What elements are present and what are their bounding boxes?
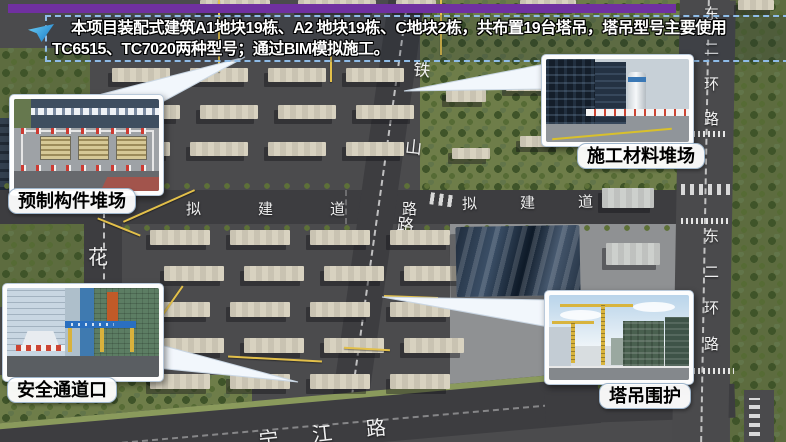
safety-gate-panel: [2, 283, 164, 382]
building-block: [310, 374, 370, 389]
crane-fence-photo: [549, 295, 689, 380]
building-block: [446, 90, 486, 102]
crane-fence-label: 塔吊围护: [599, 383, 691, 409]
building-block: [390, 374, 450, 389]
purple-accent-bar: [8, 4, 676, 13]
tower-crane-jib: [384, 295, 438, 299]
photo-tree: [14, 99, 31, 128]
tower-crane-jib: [228, 356, 322, 363]
planned-road-west-label: 拟建道路: [186, 198, 474, 219]
building-block: [112, 68, 170, 82]
photo-building-band: [29, 108, 160, 114]
building-block: [230, 230, 290, 245]
building-block: [738, 0, 774, 10]
building-block: [164, 266, 224, 281]
banner-line1: 本项目装配式建筑A1地块19栋、A2 地块19栋、C地块2栋，共布置19台塔吊，…: [71, 18, 726, 39]
building-block: [606, 243, 660, 265]
safety-gate-label: 安全通道口: [7, 377, 117, 403]
building-block: [346, 68, 404, 82]
building-block: [404, 338, 464, 353]
planned-road-east-label: 拟建道路: [462, 189, 694, 214]
photo-gate-post: [68, 328, 72, 352]
photo-crane-jib: [560, 304, 633, 307]
photo-gate-post: [130, 328, 134, 352]
building-block: [602, 188, 654, 208]
building-block: [390, 302, 450, 317]
building-block: [268, 68, 326, 82]
photo-material-fence: [586, 109, 689, 116]
photo-gate-post: [100, 328, 104, 352]
photo-green-building: [623, 321, 664, 367]
material-yard-label: 施工材料堆场: [577, 143, 705, 169]
building-block: [278, 105, 336, 119]
building-block: [244, 338, 304, 353]
hua-road-label: 花: [88, 241, 108, 270]
building-block: [310, 230, 370, 245]
crosswalk: [749, 398, 760, 436]
building-block: [390, 230, 450, 245]
building-block: [268, 142, 326, 156]
prefab-yard-panel: [9, 94, 164, 196]
large-industrial-building: [455, 225, 580, 297]
prefab-yard-label: 预制构件堆场: [8, 188, 136, 214]
photo-fence-posts: [21, 128, 150, 134]
slide: 铁山路 拟建道路 拟建道路 东二环路 东二环路 花 宁江路 本项目装配式建筑A1…: [0, 0, 786, 442]
building-block: [324, 266, 384, 281]
photo-white-tent: [22, 331, 58, 345]
material-yard-photo: [546, 59, 689, 142]
photo-green-building: [665, 317, 689, 366]
building-block: [150, 230, 210, 245]
photo-crane-mast: [571, 321, 575, 364]
building-block: [200, 105, 258, 119]
material-yard-panel: [541, 54, 694, 147]
building-block: [164, 338, 224, 353]
building-block: [356, 105, 414, 119]
building-block: [452, 148, 490, 159]
photo-striped-barrier: [16, 345, 65, 351]
photo-building-left: [549, 327, 571, 366]
building-block: [230, 374, 290, 389]
safety-gate-photo: [7, 288, 159, 377]
crane-fence-panel: [544, 290, 694, 385]
photo-ground: [549, 366, 689, 380]
building-block: [190, 142, 248, 156]
building-block: [230, 302, 290, 317]
road-hatching: [681, 218, 729, 224]
photo-ground: [7, 356, 159, 377]
photo-crane-mast: [601, 304, 605, 365]
building-block: [404, 266, 464, 281]
photo-gate-sign: [65, 321, 136, 328]
greenery-right-edge: [730, 0, 786, 442]
building-block: [324, 338, 384, 353]
building-block: [310, 302, 370, 317]
building-block: [346, 142, 404, 156]
prefab-yard-photo: [14, 99, 159, 191]
east-second-ring-lower-label: 东二环路: [700, 228, 721, 372]
building-block: [244, 266, 304, 281]
photo-cloud: [633, 302, 675, 312]
photo-silo-band: [628, 77, 647, 82]
